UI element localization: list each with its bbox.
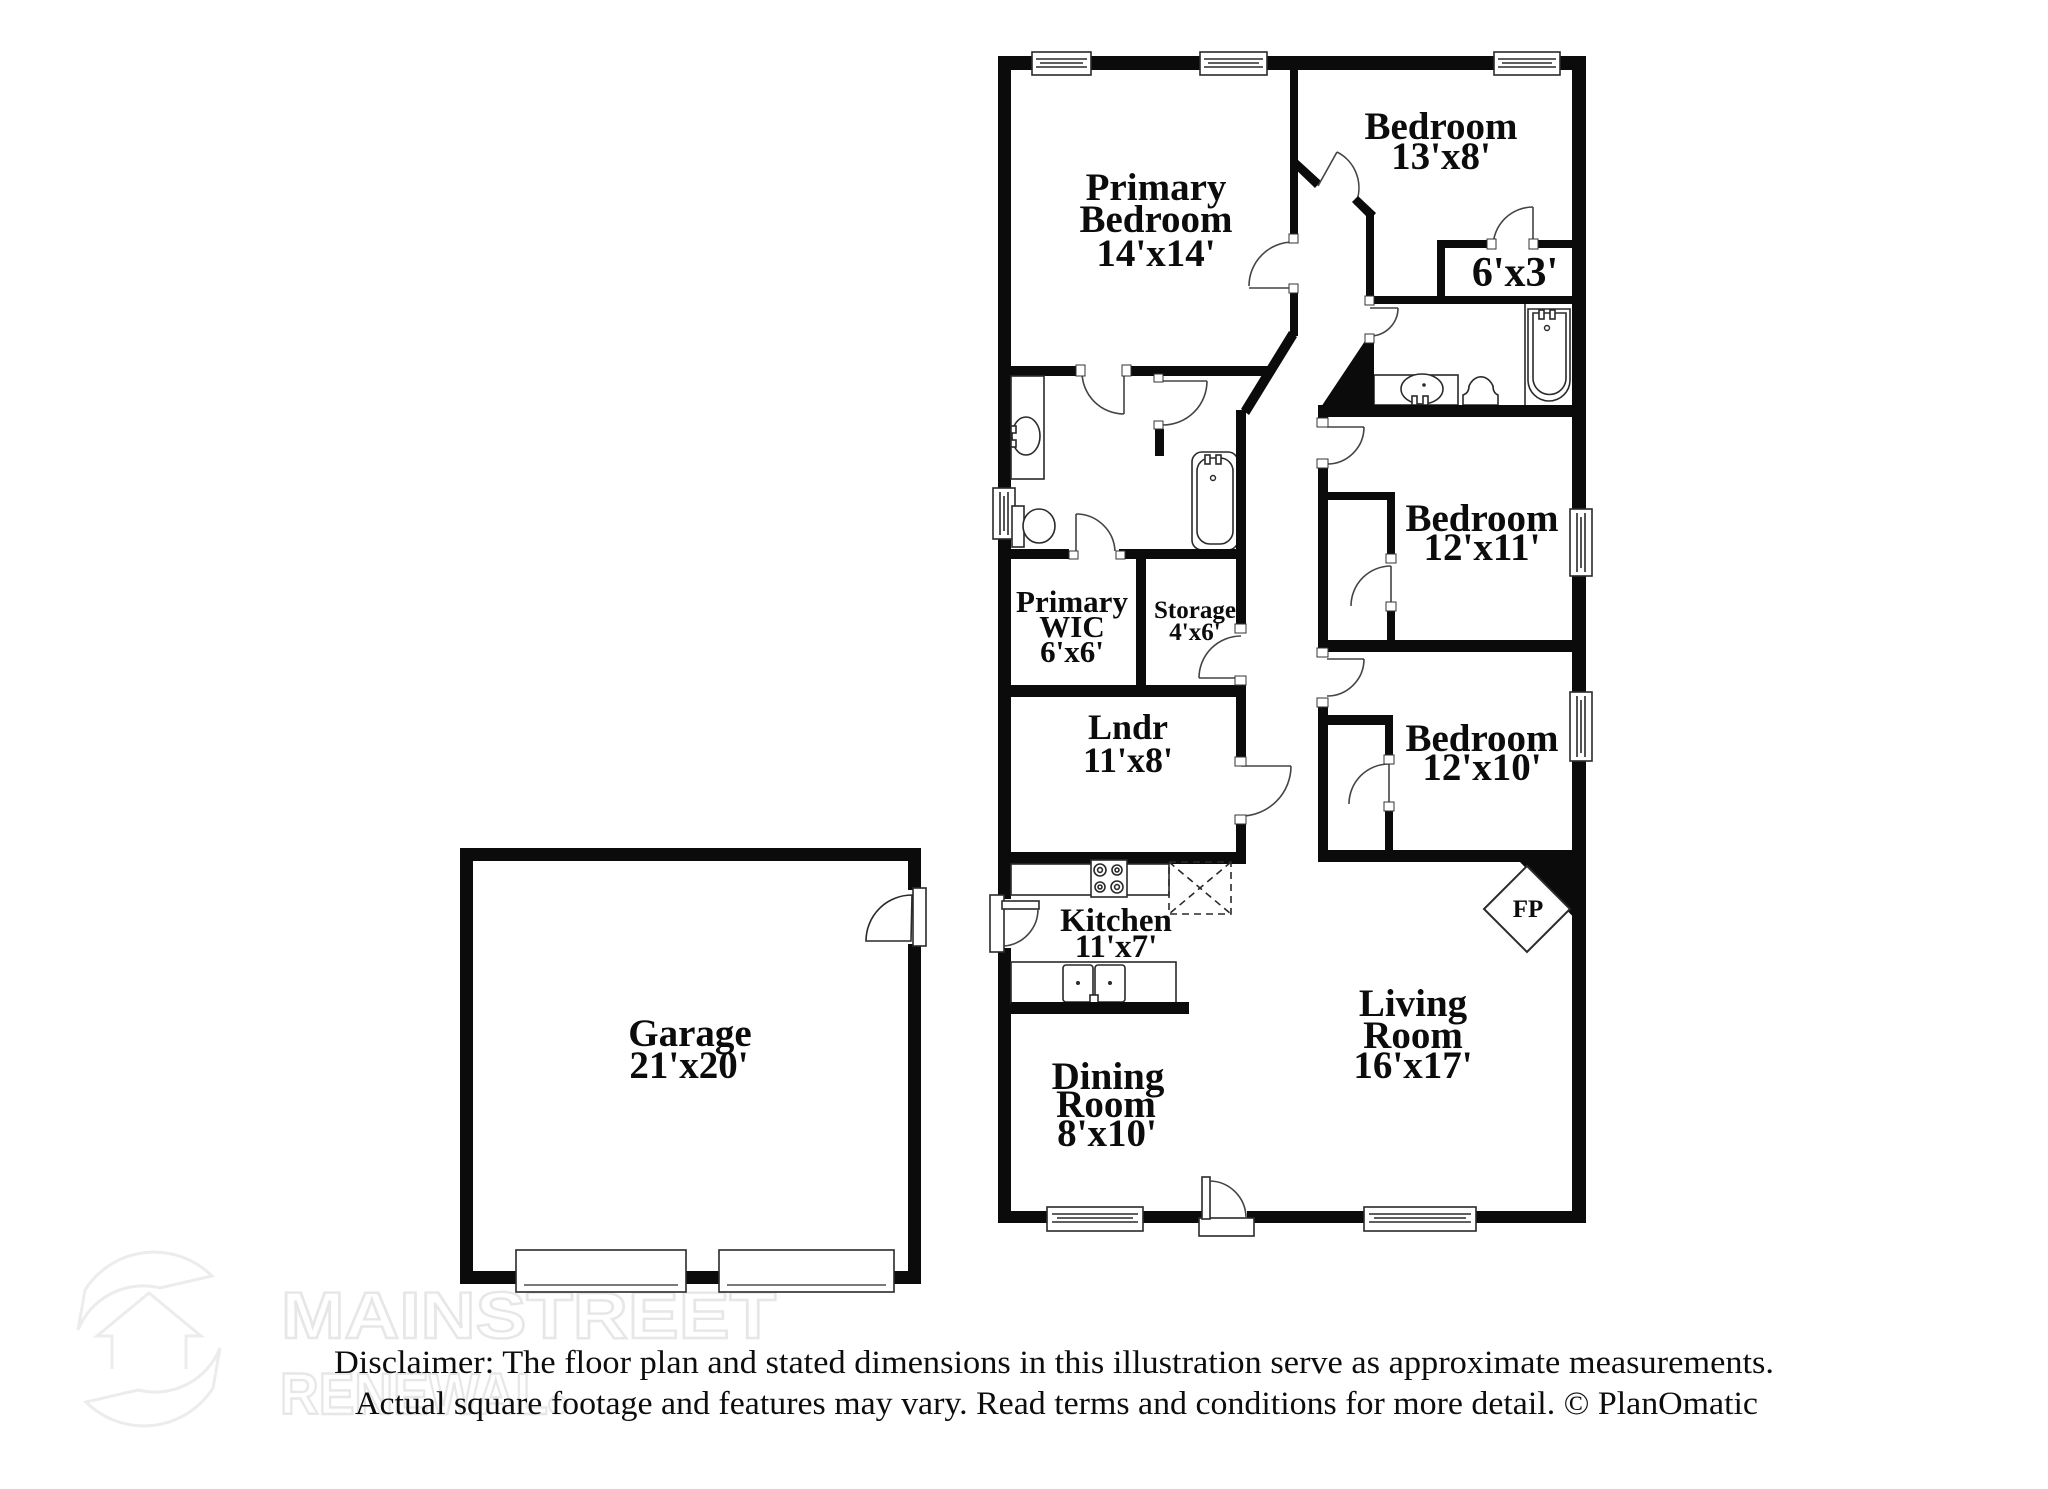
svg-text:6'x6': 6'x6' (1040, 634, 1104, 669)
svg-text:14'x14': 14'x14' (1096, 232, 1215, 275)
svg-text:12'x11': 12'x11' (1423, 526, 1540, 569)
svg-text:13'x8': 13'x8' (1391, 135, 1491, 178)
svg-text:Disclaimer: The floor plan and: Disclaimer: The floor plan and stated di… (334, 1345, 1774, 1381)
svg-text:8'x10': 8'x10' (1057, 1112, 1157, 1155)
svg-text:FP: FP (1513, 896, 1544, 923)
svg-text:11'x7': 11'x7' (1075, 929, 1158, 965)
svg-text:4'x6': 4'x6' (1169, 619, 1220, 646)
svg-text:21'x20': 21'x20' (629, 1044, 748, 1087)
svg-text:12'x10': 12'x10' (1422, 746, 1541, 789)
svg-text:Actual square footage and feat: Actual square footage and features may v… (355, 1386, 1758, 1422)
svg-text:6'x3': 6'x3' (1472, 250, 1558, 296)
svg-text:16'x17': 16'x17' (1353, 1044, 1472, 1087)
svg-text:11'x8': 11'x8' (1083, 740, 1173, 780)
